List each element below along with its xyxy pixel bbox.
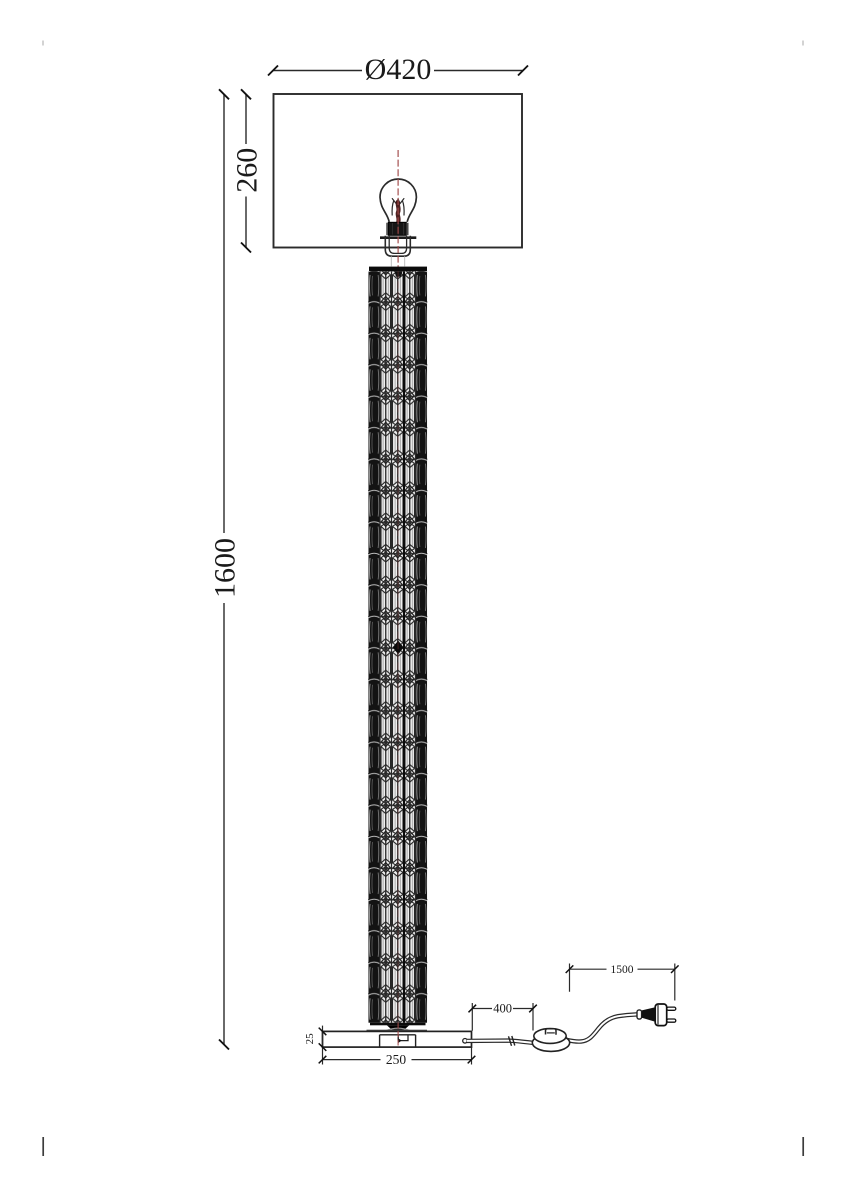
- svg-text:25: 25: [304, 1033, 316, 1045]
- svg-text:250: 250: [386, 1052, 407, 1067]
- svg-text:1600: 1600: [209, 538, 242, 598]
- svg-text:260: 260: [231, 148, 264, 193]
- svg-text:Ø420: Ø420: [365, 53, 432, 86]
- svg-text:1500: 1500: [611, 964, 634, 976]
- svg-text:400: 400: [493, 1001, 512, 1015]
